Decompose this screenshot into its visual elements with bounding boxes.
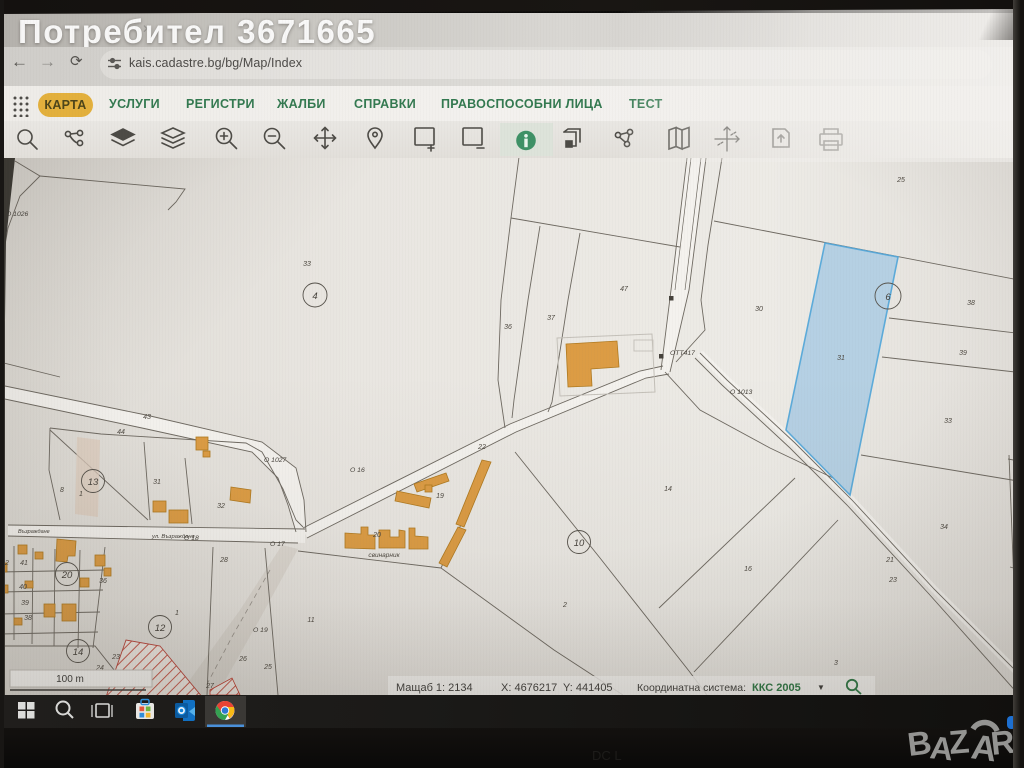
svg-text:23: 23	[111, 654, 120, 661]
svg-text:37: 37	[547, 315, 556, 322]
svg-text:26: 26	[238, 656, 247, 663]
svg-text:6: 6	[885, 292, 891, 303]
svg-text:27: 27	[205, 683, 215, 690]
svg-text:38: 38	[967, 300, 975, 307]
svg-text:31: 31	[153, 479, 161, 486]
svg-text:30: 30	[755, 306, 763, 313]
svg-text:Y: 441405: Y: 441405	[563, 682, 613, 694]
svg-text:28: 28	[219, 557, 228, 564]
svg-text:47: 47	[620, 286, 629, 293]
svg-text:33: 33	[303, 261, 311, 268]
svg-text:11: 11	[307, 617, 314, 624]
svg-text:O 1026: O 1026	[6, 211, 29, 218]
svg-text:16: 16	[744, 566, 752, 573]
svg-text:Мащаб 1: 2134: Мащаб 1: 2134	[396, 682, 473, 694]
svg-text:ул. Възраждане: ул. Възраждане	[151, 534, 196, 540]
svg-text:31: 31	[837, 355, 845, 362]
svg-text:DC L: DC L	[592, 748, 622, 763]
svg-text:22: 22	[477, 444, 486, 451]
svg-text:25: 25	[263, 664, 272, 671]
svg-text:ККС 2005: ККС 2005	[752, 682, 801, 694]
svg-text:8: 8	[60, 487, 64, 494]
svg-text:O 1027: O 1027	[264, 457, 287, 464]
svg-text:O 16: O 16	[350, 467, 365, 474]
svg-text:14: 14	[73, 647, 84, 658]
svg-text:21: 21	[885, 557, 894, 564]
svg-text:39: 39	[959, 350, 967, 357]
svg-text:3: 3	[834, 660, 838, 667]
svg-text:13: 13	[88, 477, 99, 488]
svg-text:38: 38	[24, 615, 32, 622]
svg-text:25: 25	[896, 177, 905, 184]
svg-text:14: 14	[664, 486, 672, 493]
svg-text:2: 2	[562, 602, 567, 609]
svg-text:33: 33	[944, 418, 952, 425]
svg-text:O 19: O 19	[253, 627, 268, 634]
svg-text:X: 4676217: X: 4676217	[501, 682, 557, 694]
svg-text:20: 20	[61, 570, 73, 581]
svg-text:34: 34	[940, 524, 948, 531]
svg-text:100 m: 100 m	[56, 674, 84, 685]
svg-text:▼: ▼	[817, 683, 825, 692]
svg-text:36: 36	[99, 578, 107, 585]
svg-text:Възраждане: Възраждане	[18, 529, 50, 535]
svg-text:10: 10	[574, 538, 585, 549]
svg-text:43: 43	[143, 414, 151, 421]
svg-text:12: 12	[155, 623, 166, 634]
svg-text:O 1013: O 1013	[730, 389, 753, 396]
svg-text:19: 19	[436, 493, 444, 500]
svg-text:4: 4	[312, 291, 317, 302]
svg-text:44: 44	[117, 429, 125, 436]
svg-text:40: 40	[19, 584, 27, 591]
svg-text:свинарник: свинарник	[368, 552, 400, 559]
svg-text:23: 23	[888, 577, 897, 584]
svg-text:32: 32	[217, 503, 225, 510]
svg-text:O 17: O 17	[270, 541, 285, 548]
svg-text:OTT417: OTT417	[670, 350, 695, 357]
svg-text:36: 36	[504, 324, 512, 331]
svg-text:1: 1	[79, 491, 83, 498]
svg-text:20: 20	[372, 532, 381, 539]
svg-text:39: 39	[21, 600, 29, 607]
svg-text:Координатна система:: Координатна система:	[637, 682, 746, 694]
svg-text:Z: Z	[947, 722, 970, 761]
svg-text:41: 41	[20, 560, 28, 567]
svg-text:1: 1	[175, 610, 179, 617]
